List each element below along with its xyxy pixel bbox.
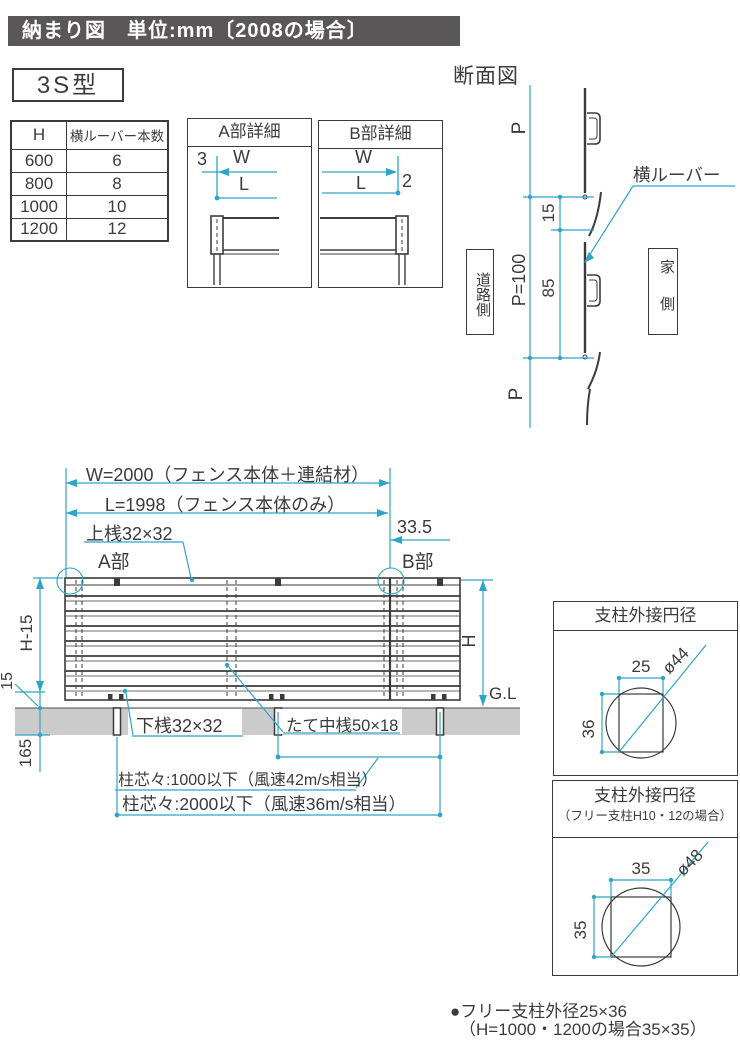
dim-35-top: 35 <box>629 859 653 879</box>
footnote-line2: （H=1000・1200の場合35×35） <box>459 1015 707 1040</box>
louver-count-table: H 横ルーバー本数 600 6 800 8 1000 10 1200 12 <box>10 120 169 242</box>
detail-a-box: A部詳細 <box>187 118 312 288</box>
dim-p-pitch: P=100 <box>509 248 531 312</box>
dim-w2000: W=2000（フェンス本体＋連結材） <box>75 461 380 487</box>
dim-p-top: P <box>509 116 531 140</box>
cell-count: 12 <box>67 218 169 241</box>
table-row: 600 6 <box>11 149 168 172</box>
road-side-box: 道路側 <box>466 249 494 335</box>
cross-section-drawing <box>523 85 735 428</box>
post-circle-2-title: 支柱外接円径 <box>553 785 737 808</box>
table-row: 1000 10 <box>11 195 168 218</box>
page-title: 納まり図 単位:mm〔2008の場合〕 <box>8 16 460 46</box>
cell-count: 8 <box>67 172 169 195</box>
part-a-label: A部 <box>98 547 130 574</box>
dim-85-section: 85 <box>539 274 559 302</box>
detail-a-title: A部詳細 <box>188 119 311 147</box>
cell-h: 1000 <box>11 195 67 218</box>
bottom-rail-label: 下桟32×32 <box>136 712 223 738</box>
detail-a-l: L <box>239 174 249 195</box>
cell-count: 10 <box>67 195 169 218</box>
detail-b-w: W <box>355 147 372 168</box>
table-header-h: H <box>11 121 67 149</box>
post-pitch-1000: 柱芯々:1000以下（風速42m/s相当） <box>118 766 378 790</box>
detail-a-w: W <box>233 147 250 168</box>
post-pitch-2000: 柱芯々:2000以下（風速36m/s相当） <box>122 791 406 816</box>
post-circle-1-box: 支柱外接円径 <box>553 601 738 776</box>
dim-165: 165 <box>16 726 36 780</box>
post-circle-2-subtitle: （フリー支柱H10・12の場合） <box>553 808 737 825</box>
dim-35-left: 35 <box>571 918 591 942</box>
detail-b-box: B部詳細 <box>318 120 443 288</box>
detail-b-offset: 2 <box>402 171 412 192</box>
table-row: 1200 12 <box>11 218 168 241</box>
dim-l1998: L=1998（フェンス本体のみ） <box>75 491 375 517</box>
cell-h: 800 <box>11 172 67 195</box>
top-rail-label: 上桟32×32 <box>86 520 173 546</box>
dim-33-5: 33.5 <box>397 517 432 538</box>
cell-h: 600 <box>11 149 67 172</box>
louver-label: 横ルーバー <box>633 162 720 187</box>
dim-15-section: 15 <box>539 199 559 227</box>
model-type-box: 3S型 <box>12 68 124 102</box>
cell-h: 1200 <box>11 218 67 241</box>
detail-b-title: B部詳細 <box>319 121 442 149</box>
post-circle-1-title: 支柱外接円径 <box>554 602 737 631</box>
dim-15-left: 15 <box>0 667 17 695</box>
dim-p-bottom: P <box>506 382 528 406</box>
dim-h: H <box>459 627 479 655</box>
cell-count: 6 <box>67 149 169 172</box>
detail-a-offset: 3 <box>197 149 207 170</box>
house-side-box: 家側 <box>648 248 678 335</box>
dim-36: 36 <box>579 717 599 741</box>
table-header-louver-count: 横ルーバー本数 <box>67 121 169 149</box>
gl-label: G.L <box>489 684 516 704</box>
part-b-label: B部 <box>402 547 434 574</box>
mid-rail-label: たて中桟50×18 <box>286 712 398 736</box>
table-row: 800 8 <box>11 172 168 195</box>
elevation-drawing <box>15 568 520 735</box>
section-title: 断面図 <box>453 60 519 90</box>
dim-25: 25 <box>629 657 653 677</box>
detail-b-l: L <box>356 173 366 194</box>
dim-h-minus-15: H-15 <box>17 598 37 668</box>
